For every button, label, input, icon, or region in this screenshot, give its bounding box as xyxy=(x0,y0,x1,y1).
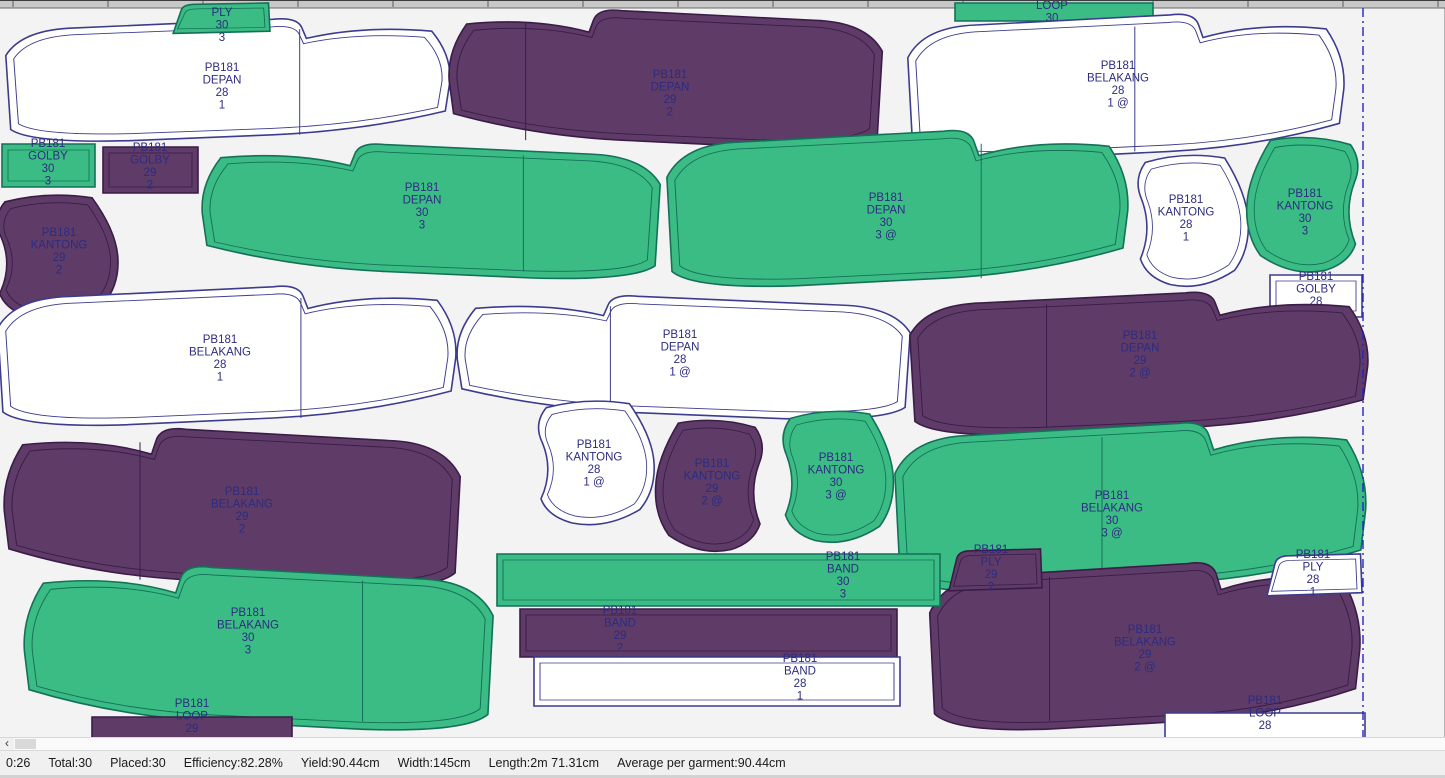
piece-label-line: GOLBY xyxy=(1296,284,1336,296)
pattern-piece-golby-29[interactable]: PB181GOLBY292 xyxy=(103,142,198,193)
piece-label-line: 1 xyxy=(219,100,225,112)
piece-label-line: BELAKANG xyxy=(217,620,279,632)
piece-label-line: PLY xyxy=(1303,562,1324,574)
piece-label-line: PB181 xyxy=(869,192,904,204)
pattern-piece-belakang-29-mid[interactable]: PB181BELAKANG292 xyxy=(4,429,460,588)
pattern-piece-depan-29-mid[interactable]: PB181DEPAN292 @ xyxy=(910,292,1368,435)
piece-label-line: 3 xyxy=(219,32,225,44)
piece-label-line: 29 xyxy=(53,252,66,264)
piece-label-line: GOLBY xyxy=(28,151,68,163)
piece-label-line: 2 xyxy=(56,265,62,277)
piece-label-line: 3 xyxy=(1302,226,1308,238)
piece-label-line: PB181 xyxy=(1101,60,1136,72)
piece-label-line: PB181 xyxy=(819,452,854,464)
piece-label-line: 2 xyxy=(667,107,673,119)
piece-label-line: 28 xyxy=(1180,219,1193,231)
piece-label-line: 1 @ xyxy=(1107,98,1128,110)
pattern-piece-kantong-30-mid[interactable]: PB181KANTONG303 @ xyxy=(783,411,893,542)
piece-label-line: 2 xyxy=(147,180,153,192)
marker-drawing: PB181DEPAN281PB181DEPAN292PLY303LOOP303P… xyxy=(0,1,1445,737)
scrollbar-thumb[interactable] xyxy=(15,739,36,749)
piece-label-line: PB181 xyxy=(603,605,638,617)
piece-label-line: BELAKANG xyxy=(1114,637,1176,649)
status-length: Length:2m 71.31cm xyxy=(489,756,600,770)
piece-label-line: 28 xyxy=(1112,85,1125,97)
piece-label-line: 3 xyxy=(840,589,846,601)
piece-label-line: KANTONG xyxy=(566,452,623,464)
piece-label-line: PB181 xyxy=(31,138,66,150)
piece-label-line: PB181 xyxy=(1128,624,1163,636)
piece-label-line: 29 xyxy=(985,569,998,581)
status-efficiency: Efficiency:82.28% xyxy=(184,756,283,770)
piece-outline xyxy=(1138,155,1248,286)
piece-label-line: PLY xyxy=(981,557,1002,569)
piece-label-line: 3 @ xyxy=(825,490,846,502)
piece-label-line: PB181 xyxy=(783,653,818,665)
piece-label-line: 28 xyxy=(794,678,807,690)
pattern-piece-kantong-28-mid[interactable]: PB181KANTONG281 @ xyxy=(539,401,655,525)
piece-label-line: 30 xyxy=(1106,515,1119,527)
piece-label-line: BAND xyxy=(784,666,816,678)
status-total: Total:30 xyxy=(48,756,92,770)
pattern-piece-depan-28-top[interactable]: PB181DEPAN281 xyxy=(6,19,450,141)
piece-label-line: PB181 xyxy=(1123,330,1158,342)
piece-label-line: 29 xyxy=(614,630,627,642)
piece-outline xyxy=(497,554,940,606)
pattern-piece-depan-30-right[interactable]: PB181DEPAN303 @ xyxy=(667,131,1128,287)
piece-label-line: 28 xyxy=(214,359,227,371)
piece-label-line: 3 xyxy=(245,645,251,657)
piece-label-line: PB181 xyxy=(663,329,698,341)
pattern-piece-golby-30[interactable]: PB181GOLBY303 xyxy=(2,138,95,188)
piece-label-line: BELAKANG xyxy=(189,347,251,359)
marker-canvas[interactable]: PB181DEPAN281PB181DEPAN292PLY303LOOP303P… xyxy=(0,1,1445,737)
piece-label-line: PB181 xyxy=(203,334,238,346)
piece-label-line: 2 @ xyxy=(701,496,722,508)
piece-label-line: BELAKANG xyxy=(1087,73,1149,85)
piece-label-line: 28 xyxy=(1259,720,1272,732)
piece-label-line: 29 xyxy=(1134,355,1147,367)
piece-label-line: PB181 xyxy=(1299,271,1334,283)
piece-label-line: PB181 xyxy=(1169,194,1204,206)
piece-label-line: PB181 xyxy=(974,544,1009,556)
piece-label-line: PB181 xyxy=(577,439,612,451)
piece-label-line: BAND xyxy=(827,564,859,576)
piece-label-line: 29 xyxy=(1139,649,1152,661)
status-yield: Yield:90.44cm xyxy=(301,756,380,770)
piece-label-line: 29 xyxy=(706,483,719,495)
piece-label-line: PB181 xyxy=(1296,549,1331,561)
piece-label-line: PB181 xyxy=(1288,188,1323,200)
piece-label-line: 29 xyxy=(236,511,249,523)
piece-label-line: DEPAN xyxy=(661,342,700,354)
piece-label-line: GOLBY xyxy=(130,155,170,167)
piece-label-line: LOOP xyxy=(176,711,208,723)
status-width: Width:145cm xyxy=(398,756,471,770)
piece-label-line: 1 @ xyxy=(583,477,604,489)
piece-label-line: LOOP xyxy=(1249,708,1281,720)
piece-label-line: 3 @ xyxy=(875,230,896,242)
piece-label-line: PB181 xyxy=(1095,490,1130,502)
horizontal-scrollbar[interactable]: ‹ xyxy=(0,737,1445,750)
piece-label-line: 1 @ xyxy=(669,367,690,379)
piece-label-line: BELAKANG xyxy=(211,499,273,511)
pattern-piece-belakang-28-mid[interactable]: PB181BELAKANG281 xyxy=(0,286,456,425)
piece-label-line: 1 xyxy=(217,372,223,384)
piece-label-line: 1 xyxy=(1310,587,1316,599)
piece-label-line: 3 xyxy=(45,176,51,188)
marker-making-app: PB181DEPAN281PB181DEPAN292PLY303LOOP303P… xyxy=(0,0,1445,778)
status-average: Average per garment:90.44cm xyxy=(617,756,786,770)
piece-label-line: 30 xyxy=(880,217,893,229)
pattern-piece-belakang-28-top[interactable]: PB181BELAKANG281 @ xyxy=(908,14,1344,159)
pattern-piece-kantong-28-top[interactable]: PB181KANTONG281 xyxy=(1138,155,1248,286)
piece-label-line: DEPAN xyxy=(651,82,690,94)
piece-label-line: PB181 xyxy=(695,458,730,470)
piece-label-line: 29 xyxy=(186,723,199,735)
piece-label-line: 2 xyxy=(617,643,623,655)
piece-label-line: 3 @ xyxy=(1101,528,1122,540)
piece-label-line: KANTONG xyxy=(1158,207,1215,219)
piece-label-line: PB181 xyxy=(1248,695,1283,707)
piece-label-line: DEPAN xyxy=(403,195,442,207)
piece-label-line: 30 xyxy=(830,477,843,489)
piece-label-line: PB181 xyxy=(653,69,688,81)
pattern-piece-depan-30-left[interactable]: PB181DEPAN303 xyxy=(202,144,660,278)
piece-label-line: 29 xyxy=(144,167,157,179)
piece-label-line: 2 @ xyxy=(1134,662,1155,674)
piece-outline xyxy=(24,567,493,730)
piece-label-line: LOOP xyxy=(1036,1,1068,12)
piece-label-line: PB181 xyxy=(231,607,266,619)
piece-label-line: PB181 xyxy=(133,142,168,154)
piece-label-line: 1 xyxy=(1183,232,1189,244)
status-bar: 0:26 Total:30 Placed:30 Efficiency:82.28… xyxy=(0,750,1445,775)
piece-label-line: KANTONG xyxy=(1277,201,1334,213)
pattern-piece-band-29[interactable]: PB181BAND292 xyxy=(520,605,897,657)
piece-label-line: DEPAN xyxy=(203,75,242,87)
piece-label-line: PB181 xyxy=(42,227,77,239)
piece-label-line: 29 xyxy=(664,94,677,106)
pattern-piece-depan-28-mid[interactable]: PB181DEPAN281 @ xyxy=(457,296,910,419)
pattern-piece-kantong-29-mid[interactable]: PB181KANTONG292 @ xyxy=(656,420,763,551)
piece-label-line: BELAKANG xyxy=(1081,503,1143,515)
piece-label-line: 2 xyxy=(239,524,245,536)
piece-label-line: PB181 xyxy=(205,62,240,74)
piece-label-line: KANTONG xyxy=(808,465,865,477)
pattern-piece-belakang-30-bottom[interactable]: PB181BELAKANG303 xyxy=(24,567,493,730)
pattern-piece-band-30[interactable]: PB181BAND303 xyxy=(497,551,940,606)
piece-label-line: KANTONG xyxy=(31,240,88,252)
piece-label-line: PB181 xyxy=(225,486,260,498)
piece-label-line: 28 xyxy=(588,464,601,476)
pattern-piece-band-28[interactable]: PB181BAND281 xyxy=(534,653,900,706)
piece-label-line: 28 xyxy=(216,87,229,99)
status-placed: Placed:30 xyxy=(110,756,166,770)
piece-label-line: 2 xyxy=(988,582,994,594)
piece-label-line: PB181 xyxy=(405,182,440,194)
status-time: 0:26 xyxy=(6,756,30,770)
piece-label-line: 1 xyxy=(797,691,803,703)
piece-label-line: 30 xyxy=(416,207,429,219)
piece-label-line: 30 xyxy=(216,20,229,32)
pattern-piece-depan-29-top[interactable]: PB181DEPAN292 xyxy=(449,10,882,147)
piece-label-line: 30 xyxy=(42,163,55,175)
piece-label-line: PB181 xyxy=(175,698,210,710)
piece-label-line: DEPAN xyxy=(867,205,906,217)
piece-label-line: 2 @ xyxy=(1129,368,1150,380)
pattern-piece-kantong-30-top[interactable]: PB181KANTONG303 xyxy=(1247,137,1358,272)
piece-label-line: 28 xyxy=(1307,574,1320,586)
piece-label-line: PB181 xyxy=(826,551,861,563)
piece-label-line: DEPAN xyxy=(1121,343,1160,355)
piece-label-line: BAND xyxy=(604,618,636,630)
piece-label-line: KANTONG xyxy=(684,471,741,483)
piece-label-line: 30 xyxy=(242,632,255,644)
scroll-left-button[interactable]: ‹ xyxy=(0,738,14,750)
piece-label-line: PLY xyxy=(212,7,233,19)
piece-outline xyxy=(520,609,897,657)
piece-label-line: 30 xyxy=(837,576,850,588)
pattern-piece-ply-29[interactable]: PB181PLY292 xyxy=(949,544,1042,594)
piece-label-line: 28 xyxy=(674,354,687,366)
piece-label-line: 30 xyxy=(1299,213,1312,225)
piece-outline xyxy=(534,657,900,706)
piece-outline xyxy=(202,144,660,278)
pattern-piece-ply-28[interactable]: PB181PLY281 xyxy=(1267,549,1362,599)
piece-label-line: 3 xyxy=(419,220,425,232)
piece-outline xyxy=(908,14,1344,159)
